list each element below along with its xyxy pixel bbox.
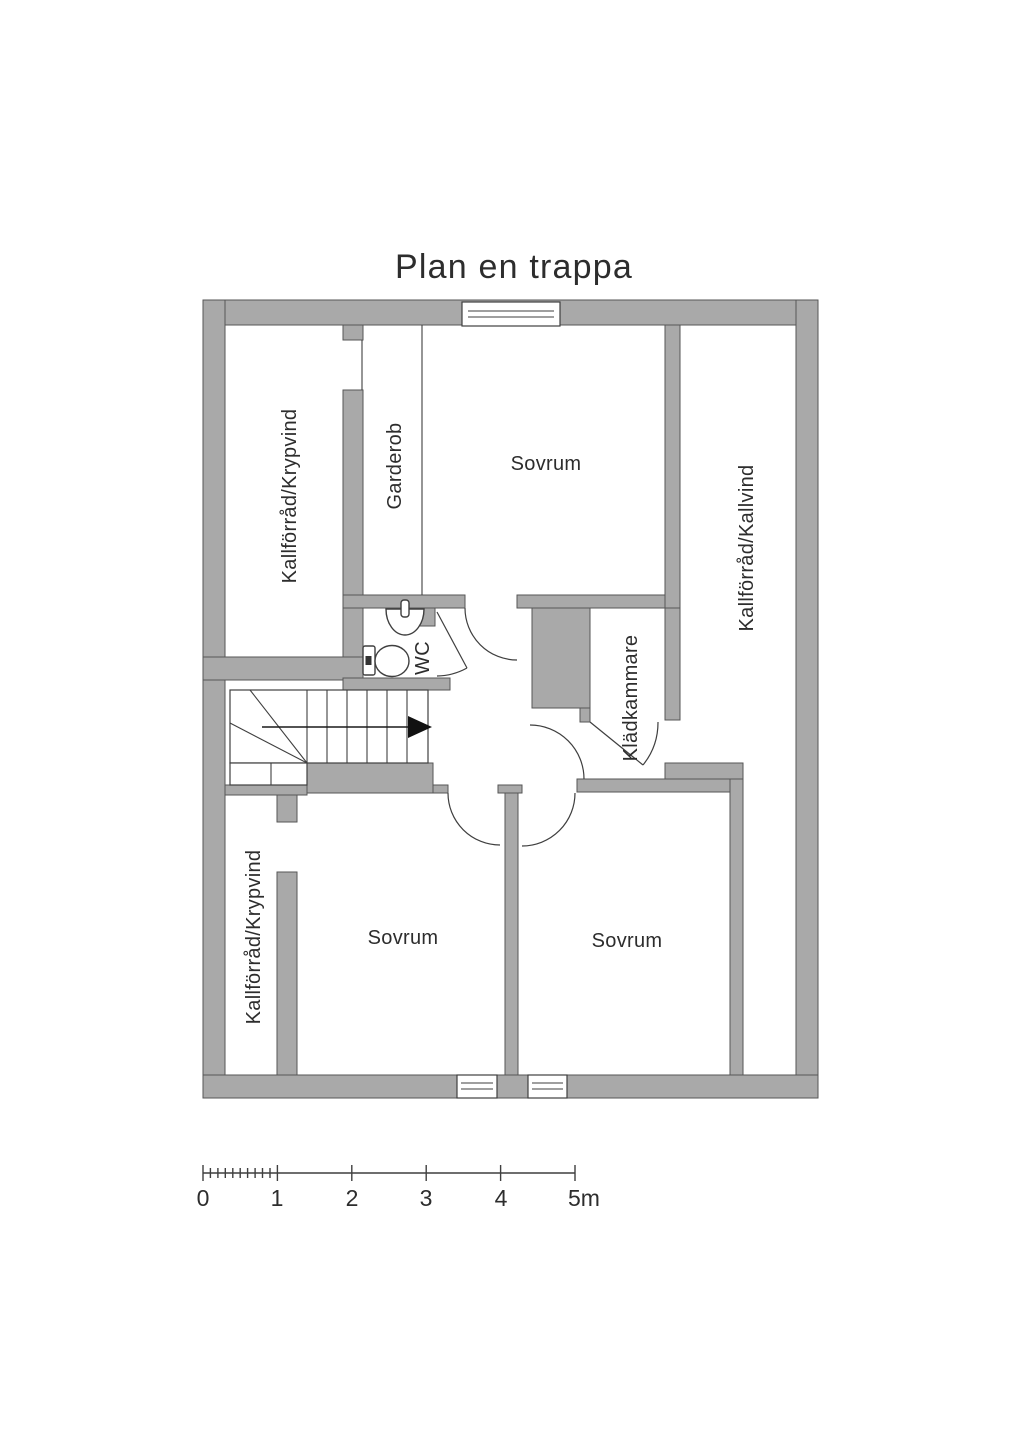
chimney-foot — [580, 708, 590, 722]
wall-segment — [505, 793, 518, 1075]
wall-segment — [730, 779, 743, 1075]
room-label-sovrum-top: Sovrum — [511, 453, 582, 475]
scale-tick-label-4: 4 — [495, 1185, 508, 1211]
room-label-kallforrad-krypvind-bottom: Kallförråd/Krypvind — [243, 850, 265, 1025]
window-frame — [528, 1075, 567, 1098]
window-frame — [457, 1075, 497, 1098]
wall-segment — [577, 779, 743, 792]
wall-segment — [498, 785, 522, 793]
wall-segment — [433, 785, 448, 793]
wall-segment — [343, 390, 363, 690]
door-arc-kladkammare — [643, 722, 658, 765]
wall-segment — [277, 795, 297, 822]
wall-segment — [307, 763, 433, 793]
wall-segment — [665, 608, 680, 720]
room-label-kallforrad-krypvind-top: Kallförråd/Krypvind — [279, 409, 301, 584]
room-label-sovrum-bottom-right: Sovrum — [592, 930, 663, 952]
window-bottom-right — [528, 1075, 567, 1098]
scale-tick-label-2: 2 — [346, 1185, 359, 1211]
door-arc-sovrum-top — [465, 608, 517, 660]
wall-segment — [343, 678, 450, 690]
wall-segment — [665, 763, 743, 780]
room-label-garderob: Garderob — [384, 423, 406, 510]
page-title: Plan en trappa — [395, 248, 633, 286]
door-arc-sovrum-bottom-left — [448, 793, 500, 845]
room-label-sovrum-bottom-left: Sovrum — [368, 927, 439, 949]
door-leaf-wc — [437, 612, 467, 668]
wall-segment — [517, 595, 680, 608]
window-top — [462, 302, 560, 326]
toilet-button-icon — [366, 656, 372, 665]
door-arc-hall — [530, 725, 584, 779]
floor-plan-page: Plan en trappa Kallförråd/Krypvind Garde… — [0, 0, 1024, 1448]
wall-segment — [277, 872, 297, 1075]
floor-plan-image: Plan en trappa Kallförråd/Krypvind Garde… — [0, 0, 1024, 1448]
wall-segment — [796, 300, 818, 1098]
wall-segment — [203, 1075, 818, 1098]
window-frame — [462, 302, 560, 326]
scale-tick-label-5m: 5m — [568, 1185, 600, 1211]
chimney-block — [532, 608, 590, 708]
door-arc-wc — [437, 668, 467, 676]
wall-segment — [665, 325, 680, 608]
sink-tap-icon — [401, 600, 409, 617]
stair-winder — [230, 763, 307, 785]
door-arc-sovrum-bottom-right — [522, 793, 575, 846]
window-bottom-left — [457, 1075, 497, 1098]
room-label-kladkammare: Klädkammare — [620, 635, 642, 762]
scale-tick-label-1: 1 — [271, 1185, 284, 1211]
wall-segment — [203, 657, 363, 680]
scale-tick-label-0: 0 — [197, 1185, 210, 1211]
wall-segment — [203, 300, 225, 1098]
wall-segment — [225, 785, 307, 795]
toilet-bowl-icon — [375, 646, 409, 677]
scale-tick-label-3: 3 — [420, 1185, 433, 1211]
room-label-wc: WC — [412, 641, 434, 675]
room-label-kallforrad-kallvind: Kallförråd/Kallvind — [736, 465, 758, 632]
scale-bar: 0 1 2 3 4 5m — [197, 1165, 600, 1211]
wall-segment — [343, 325, 363, 340]
